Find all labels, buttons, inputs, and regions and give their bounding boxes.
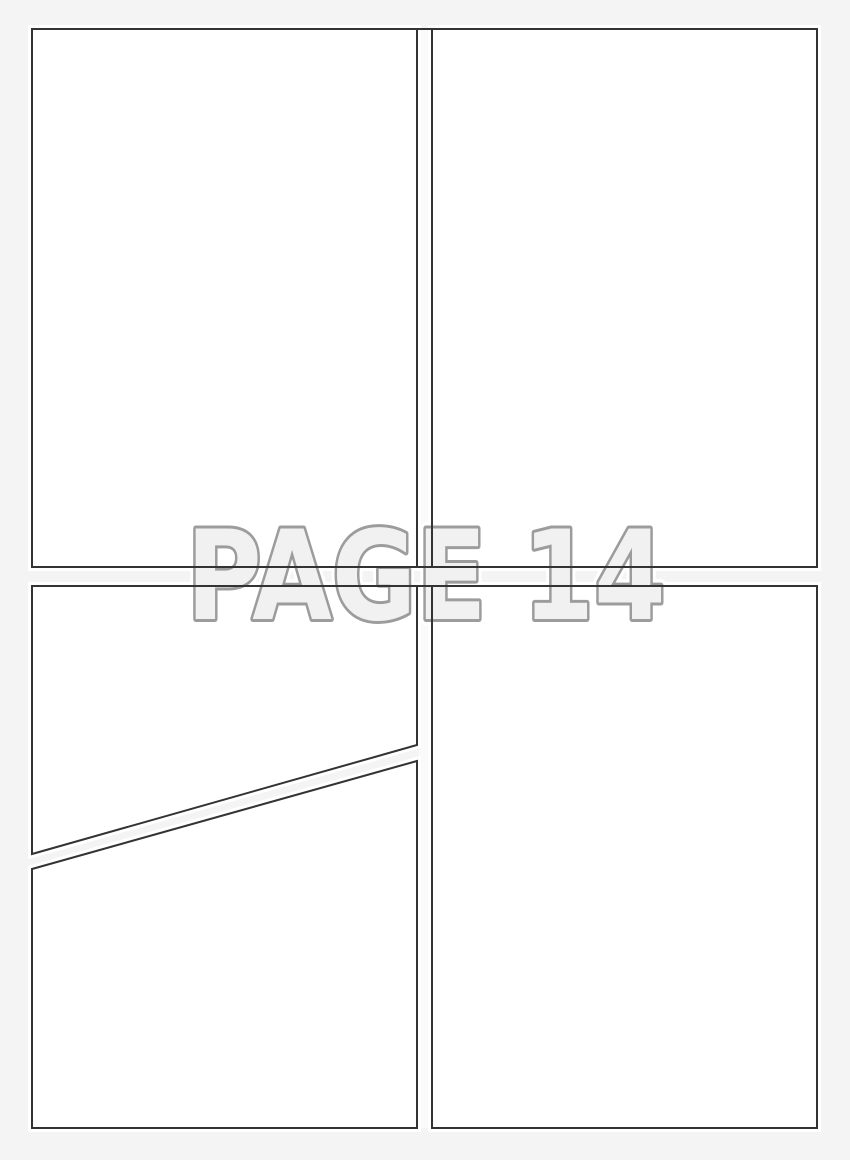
panel-top-left-fill [32,29,417,567]
page-number-watermark: PAGE 14 PAGE 14 [186,504,665,649]
page-number-text: PAGE 14 [186,504,665,649]
comic-page-canvas: PAGE 14 PAGE 14 [0,0,850,1160]
comic-page-template: PAGE 14 PAGE 14 [0,0,850,1160]
panel-bottom-right-fill [432,586,817,1128]
panel-top-right-fill [432,29,817,567]
page-background: { "watermark": { "text": "PAGE 14" }, "c… [0,0,850,1160]
